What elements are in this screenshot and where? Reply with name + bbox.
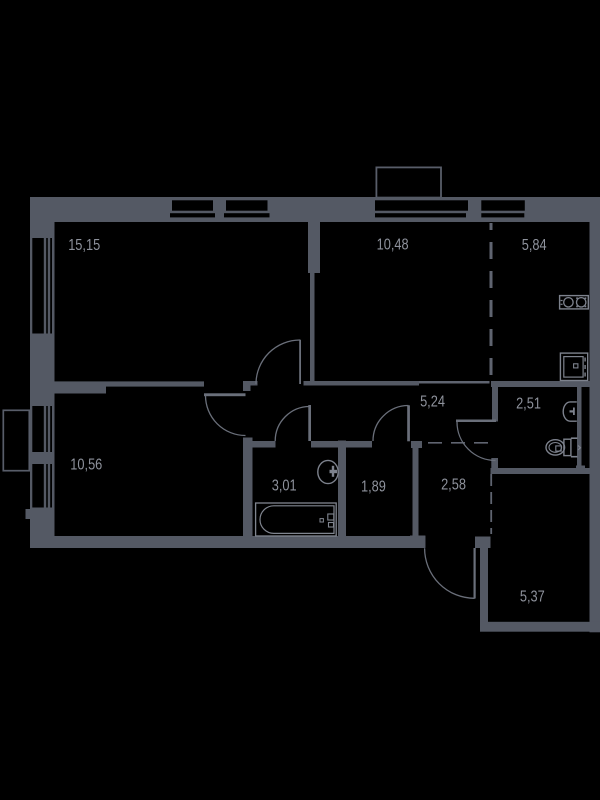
svg-text:10,48: 10,48 [377, 236, 409, 254]
svg-text:10,56: 10,56 [70, 456, 102, 474]
svg-text:1,89: 1,89 [361, 478, 386, 496]
svg-text:5,84: 5,84 [522, 237, 547, 255]
svg-text:5,37: 5,37 [520, 588, 545, 606]
svg-text:2,58: 2,58 [441, 476, 466, 494]
svg-text:2,51: 2,51 [516, 395, 541, 413]
svg-text:5,24: 5,24 [420, 393, 445, 411]
svg-text:3,01: 3,01 [272, 477, 297, 495]
svg-text:15,15: 15,15 [68, 237, 100, 255]
